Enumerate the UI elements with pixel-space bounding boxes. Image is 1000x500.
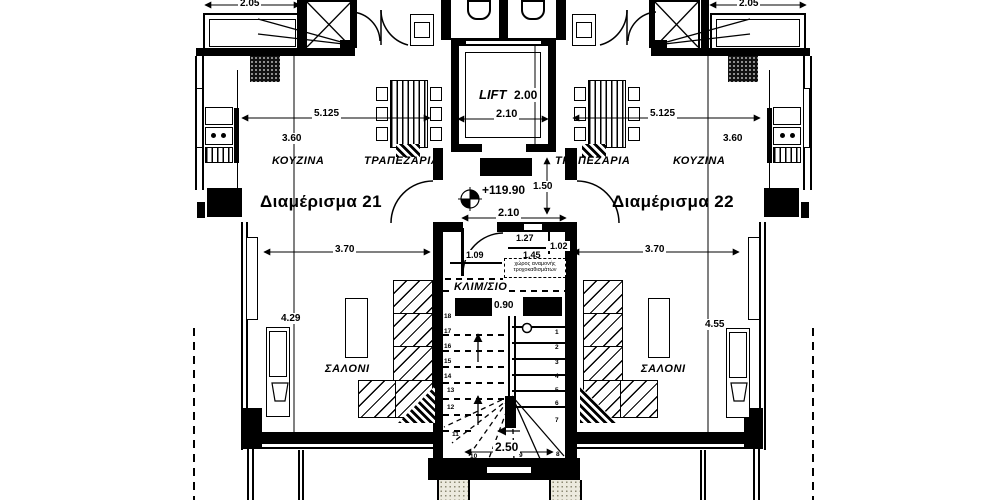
stairs-label: ΚΛΙΜ/ΣΙΟ (452, 281, 509, 293)
lobby-width-dim: 2.10 (496, 207, 521, 219)
stair-width-dim: 0.90 (492, 300, 515, 311)
step-number: 14 (444, 373, 451, 380)
step-number: 4 (555, 373, 559, 380)
stair-run-dim: 2.50 (493, 440, 520, 454)
lift-width-dim: 2.10 (494, 108, 519, 120)
dim-living-width-left: 3.70 (333, 244, 356, 255)
dim-living-width-right: 3.70 (643, 244, 666, 255)
dim-counter-left: 2.05 (238, 0, 261, 9)
kitchen-label-left: ΚΟΥΖΙΝΑ (272, 155, 324, 167)
lift-label: LIFT (477, 87, 508, 102)
dim-living-depth-left: 4.29 (279, 313, 302, 324)
step-number: 16 (444, 343, 451, 350)
wheelchair-note: χώρος αναμονής τροχοκαθισμάτων (504, 258, 566, 278)
step-number: 13 (447, 387, 454, 394)
level-mark: +119.90 (480, 183, 527, 197)
step-number: 11 (452, 431, 459, 438)
entry-side-dim: 1.50 (531, 181, 554, 192)
floor-plan: LIFT 2.00 2.10 +119.90 1.50 2.10 1.27 1.… (0, 0, 1000, 500)
step-number: 6 (555, 400, 559, 407)
step-number: 10 (470, 453, 477, 460)
linework-overlay (0, 0, 1000, 500)
apartment-name-left: Διαμέρισμα 21 (260, 192, 382, 212)
step-number: 8 (556, 451, 560, 458)
living-label-right: ΣΑΛΟΝΙ (641, 363, 686, 375)
dining-label-right: ΤΡΑΠΕΖΑΡΙΑ (555, 155, 630, 167)
step-number: 7 (555, 417, 559, 424)
step-number: 3 (555, 359, 559, 366)
dim-width-right: 5.125 (648, 108, 677, 119)
apartment-name-right: Διαμέρισμα 22 (612, 192, 734, 212)
living-label-left: ΣΑΛΟΝΙ (325, 363, 370, 375)
kitchen-label-right: ΚΟΥΖΙΝΑ (673, 155, 725, 167)
vestibule-dim-top: 1.27 (514, 233, 536, 243)
dim-counter-right: 2.05 (737, 0, 760, 9)
step-number: 12 (447, 404, 454, 411)
vestibule-dim-left: 1.09 (464, 250, 486, 260)
wheelchair-note-line2: τροχοκαθισμάτων (505, 267, 565, 273)
step-number: 1 (555, 329, 559, 336)
step-number: 5 (555, 387, 559, 394)
dim-width-left: 5.125 (312, 108, 341, 119)
step-number: 15 (444, 358, 451, 365)
step-number: 18 (444, 313, 451, 320)
vestibule-dim-right: 1.02 (548, 241, 570, 251)
step-number: 2 (555, 344, 559, 351)
dining-label-left: ΤΡΑΠΕΖΑΡΙΑ (364, 155, 439, 167)
step-number: 17 (444, 328, 451, 335)
dim-kitchen-depth-left: 3.60 (280, 133, 303, 144)
dim-kitchen-depth-right: 3.60 (721, 133, 744, 144)
lift-depth-dim: 2.00 (512, 88, 539, 102)
dim-living-depth-right: 4.55 (703, 319, 726, 330)
